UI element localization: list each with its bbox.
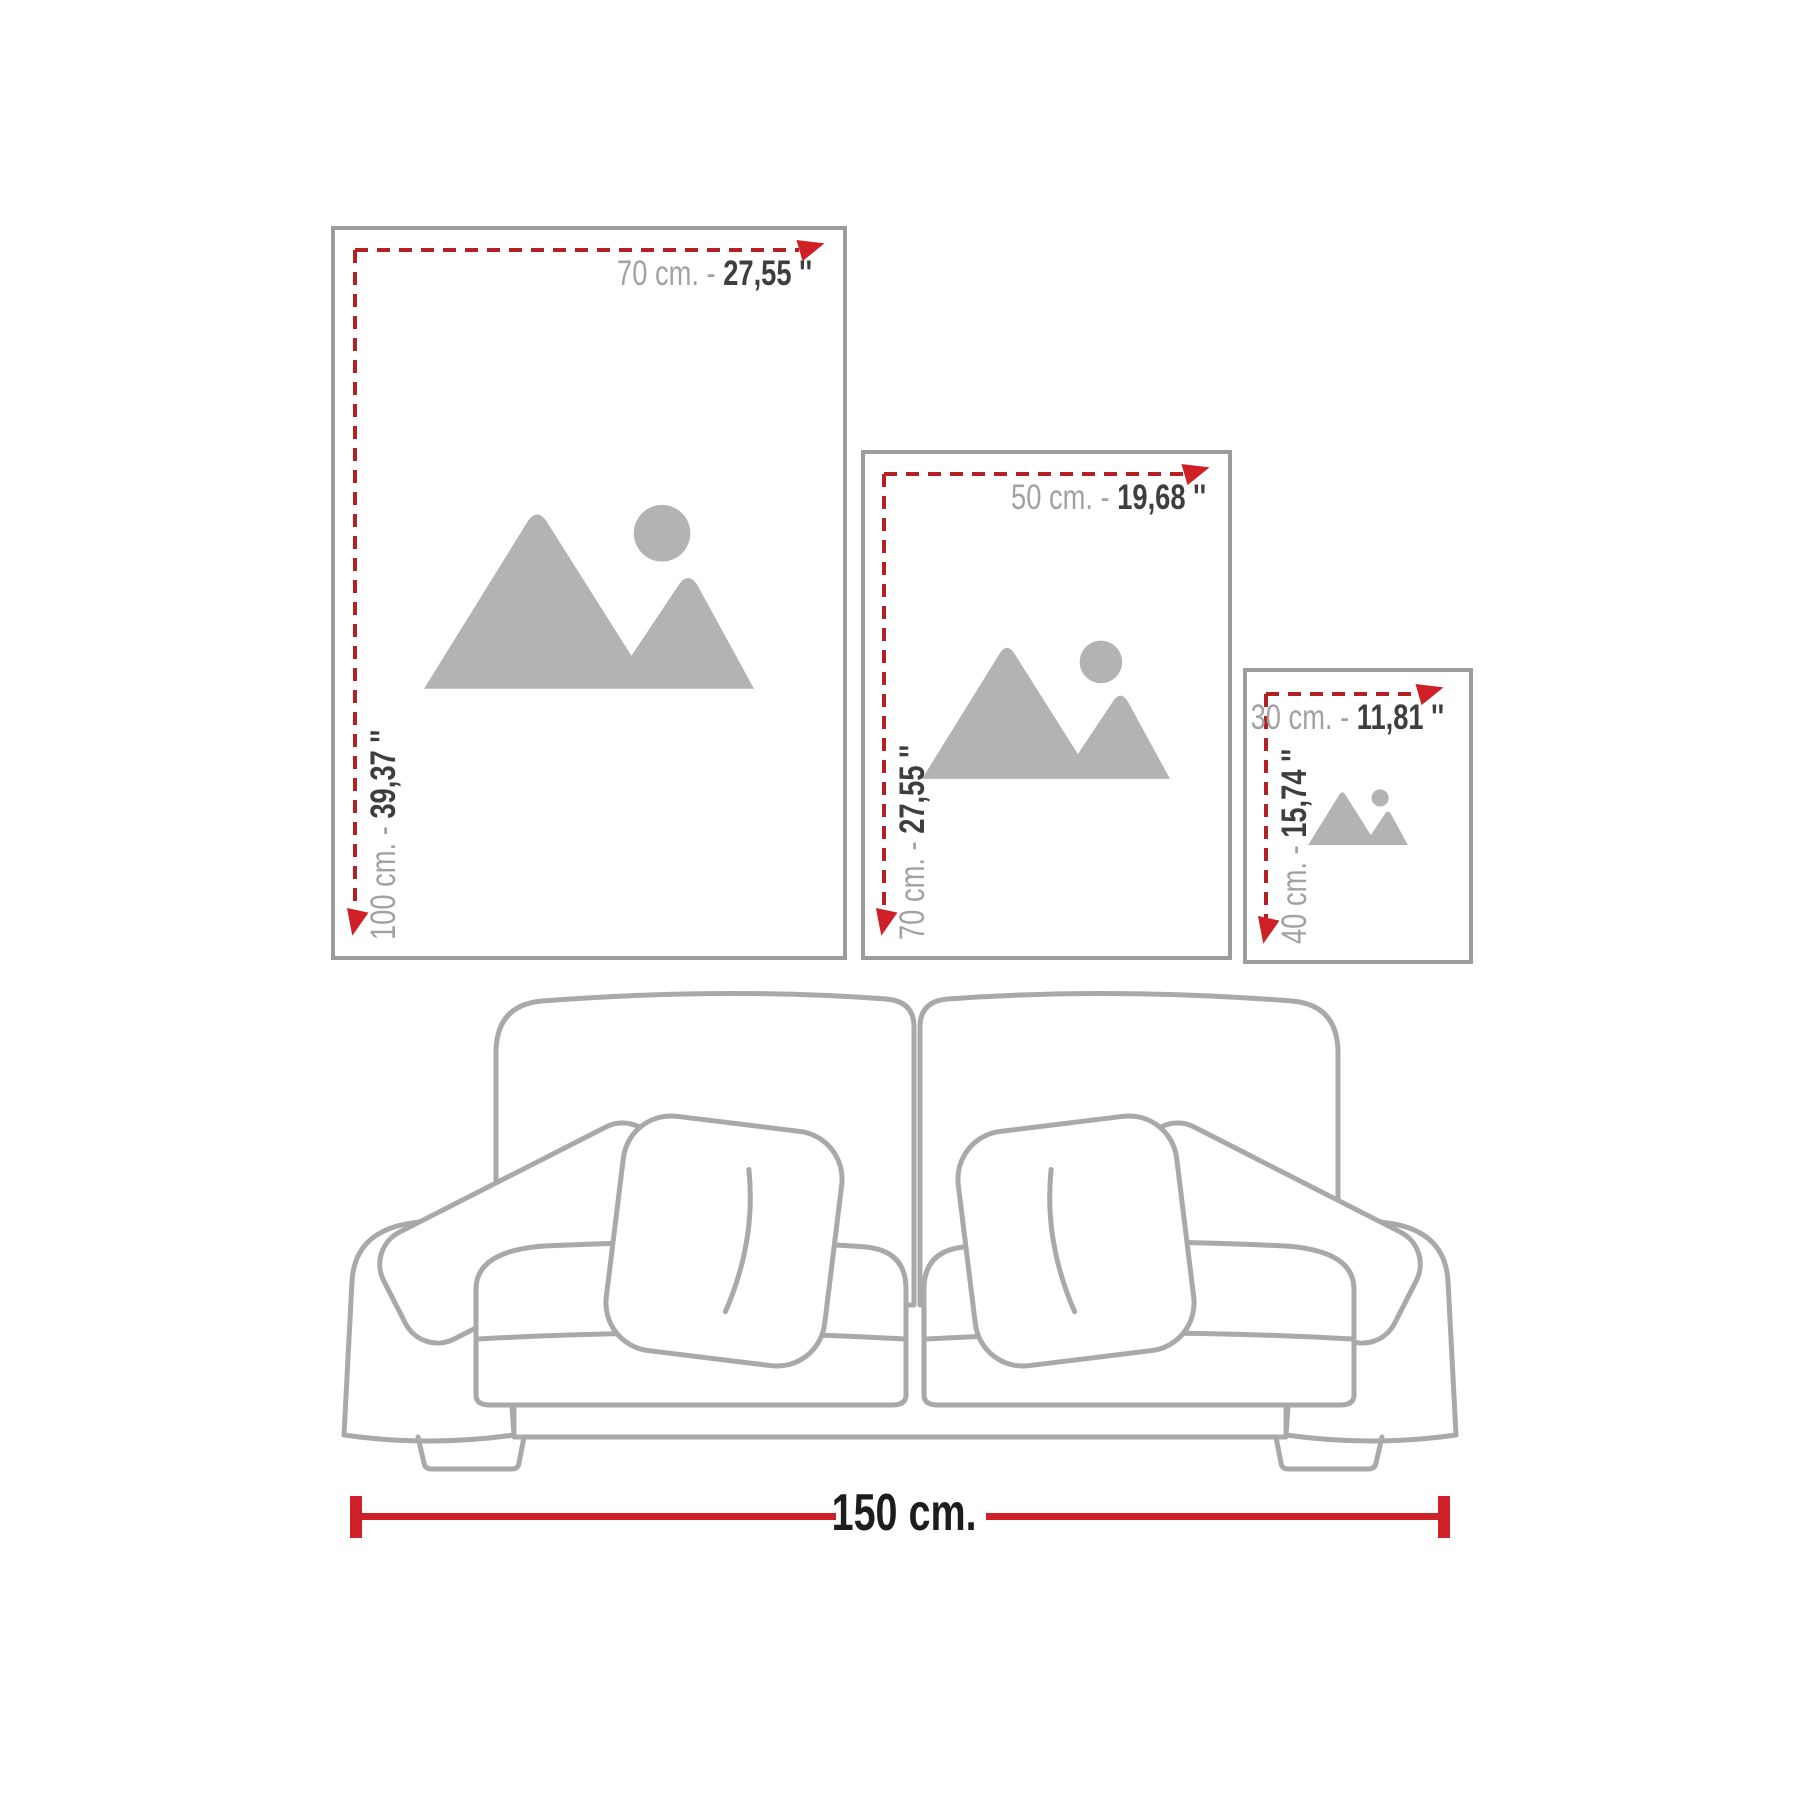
height-dimension-label: 40 cm. - 15,74 '' bbox=[1277, 749, 1312, 944]
measure-end-cap-left bbox=[350, 1496, 362, 1538]
sofa-width-line-right bbox=[986, 1513, 1438, 1520]
measure-end-cap-right bbox=[1438, 1496, 1450, 1538]
width-dimension-line bbox=[884, 472, 1184, 476]
size-guide-diagram: 70 cm. - 27,55 '' 100 cm. - 39,37 '' 50 … bbox=[0, 0, 1800, 1800]
sofa-width-line-left bbox=[362, 1513, 836, 1520]
height-dimension-line bbox=[882, 474, 886, 910]
width-dimension-label: 70 cm. - 27,55 '' bbox=[617, 256, 812, 291]
image-placeholder-icon bbox=[922, 637, 1170, 779]
sofa-illustration bbox=[300, 975, 1500, 1475]
width-dimension-line bbox=[1266, 692, 1418, 696]
width-dimension-line bbox=[355, 248, 799, 252]
sofa-width-label: 150 cm. bbox=[832, 1487, 969, 1539]
image-placeholder-icon bbox=[424, 500, 754, 689]
height-dimension-label: 70 cm. - 27,55 '' bbox=[895, 745, 930, 940]
height-dimension-line bbox=[353, 250, 357, 910]
height-dimension-label: 100 cm. - 39,37 '' bbox=[366, 730, 401, 940]
image-placeholder-icon bbox=[1308, 788, 1408, 845]
width-dimension-label: 50 cm. - 19,68 '' bbox=[1011, 480, 1206, 515]
width-dimension-label: 30 cm. - 11,81 '' bbox=[1250, 700, 1444, 735]
